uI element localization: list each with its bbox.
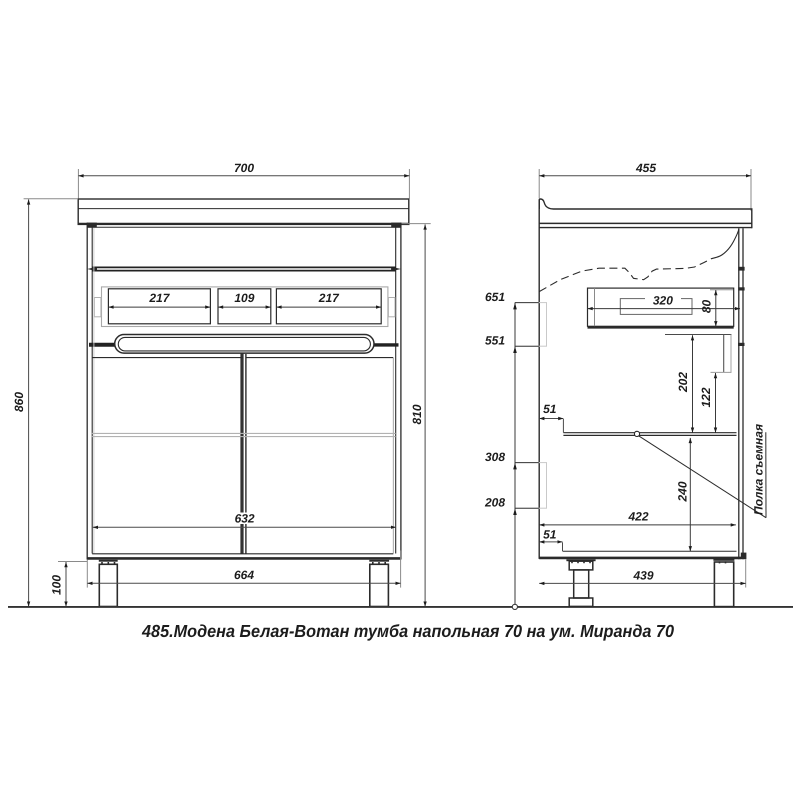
svg-text:651: 651 [485, 290, 505, 304]
svg-text:700: 700 [234, 161, 254, 175]
svg-text:422: 422 [627, 509, 648, 523]
svg-text:320: 320 [653, 293, 673, 307]
svg-text:810: 810 [410, 404, 424, 424]
svg-text:80: 80 [699, 300, 713, 314]
svg-text:551: 551 [485, 334, 505, 348]
svg-text:100: 100 [50, 575, 64, 595]
svg-text:860: 860 [12, 392, 26, 412]
svg-text:51: 51 [543, 527, 557, 541]
svg-text:202: 202 [676, 372, 690, 393]
svg-text:240: 240 [675, 481, 689, 502]
svg-text:122: 122 [699, 387, 713, 407]
svg-text:208: 208 [484, 496, 505, 510]
svg-text:485.Модена Белая-Вотан тумба н: 485.Модена Белая-Вотан тумба напольная 7… [141, 621, 674, 641]
svg-text:217: 217 [148, 291, 170, 305]
svg-text:109: 109 [234, 291, 254, 305]
svg-text:632: 632 [235, 512, 255, 526]
svg-text:51: 51 [543, 402, 557, 416]
svg-text:Полка съемная: Полка съемная [752, 424, 766, 515]
svg-text:308: 308 [485, 450, 505, 464]
svg-text:217: 217 [318, 291, 340, 305]
svg-text:664: 664 [234, 568, 254, 582]
svg-text:455: 455 [635, 161, 656, 175]
svg-text:439: 439 [632, 568, 653, 582]
